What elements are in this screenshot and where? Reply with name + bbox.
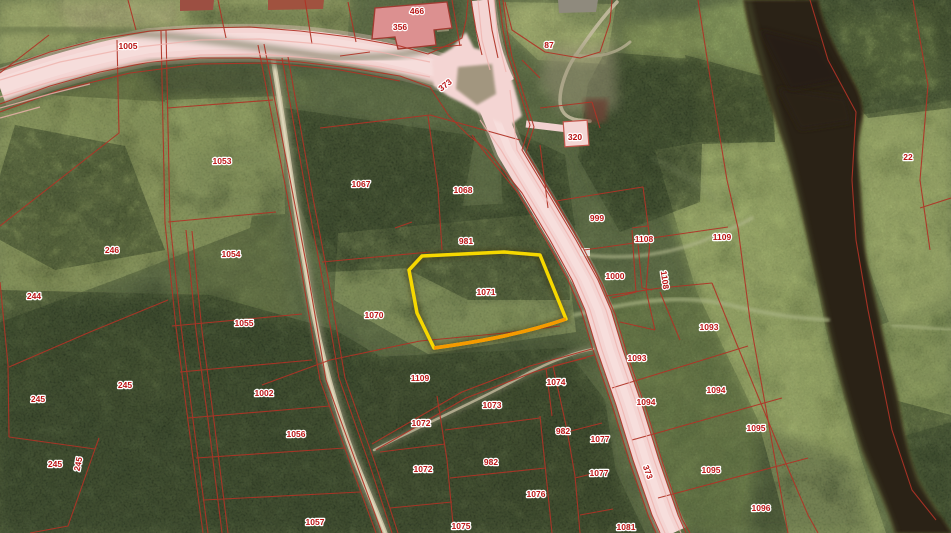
svg-text:1074: 1074 [547, 377, 566, 387]
svg-text:245: 245 [118, 380, 132, 390]
svg-text:1075: 1075 [452, 521, 471, 531]
svg-text:244: 244 [27, 291, 41, 301]
svg-text:1005: 1005 [119, 41, 138, 51]
svg-text:981: 981 [459, 236, 473, 246]
svg-text:1096: 1096 [752, 503, 771, 513]
svg-text:1002: 1002 [255, 388, 274, 398]
svg-text:1054: 1054 [222, 249, 241, 259]
svg-text:1077: 1077 [590, 468, 609, 478]
svg-text:1057: 1057 [306, 517, 325, 527]
svg-text:1094: 1094 [707, 385, 726, 395]
svg-text:1073: 1073 [483, 400, 502, 410]
svg-text:1067: 1067 [352, 179, 371, 189]
svg-text:1076: 1076 [527, 489, 546, 499]
svg-text:1108: 1108 [635, 234, 654, 244]
svg-text:245: 245 [48, 459, 62, 469]
svg-text:982: 982 [484, 457, 498, 467]
svg-text:1077: 1077 [591, 434, 610, 444]
svg-text:982: 982 [556, 426, 570, 436]
svg-text:1093: 1093 [628, 353, 647, 363]
svg-text:1081: 1081 [617, 522, 636, 532]
svg-text:1072: 1072 [414, 464, 433, 474]
svg-text:1000: 1000 [606, 271, 625, 281]
svg-text:1095: 1095 [702, 465, 721, 475]
svg-text:1070: 1070 [365, 310, 384, 320]
svg-text:246: 246 [105, 245, 119, 255]
svg-text:356: 356 [393, 22, 407, 32]
svg-text:1109: 1109 [713, 232, 732, 242]
svg-text:1068: 1068 [454, 185, 473, 195]
svg-text:999: 999 [590, 213, 604, 223]
svg-text:1055: 1055 [235, 318, 254, 328]
svg-text:1109: 1109 [411, 373, 430, 383]
svg-text:22: 22 [903, 152, 913, 162]
svg-text:1071: 1071 [477, 287, 496, 297]
svg-text:1053: 1053 [213, 156, 232, 166]
svg-text:1072: 1072 [412, 418, 431, 428]
svg-text:87: 87 [544, 40, 554, 50]
svg-text:1094: 1094 [637, 397, 656, 407]
svg-text:1095: 1095 [747, 423, 766, 433]
svg-text:320: 320 [568, 132, 582, 142]
svg-text:1056: 1056 [287, 429, 306, 439]
svg-text:245: 245 [31, 394, 45, 404]
svg-text:1093: 1093 [700, 322, 719, 332]
svg-text:466: 466 [410, 6, 424, 16]
